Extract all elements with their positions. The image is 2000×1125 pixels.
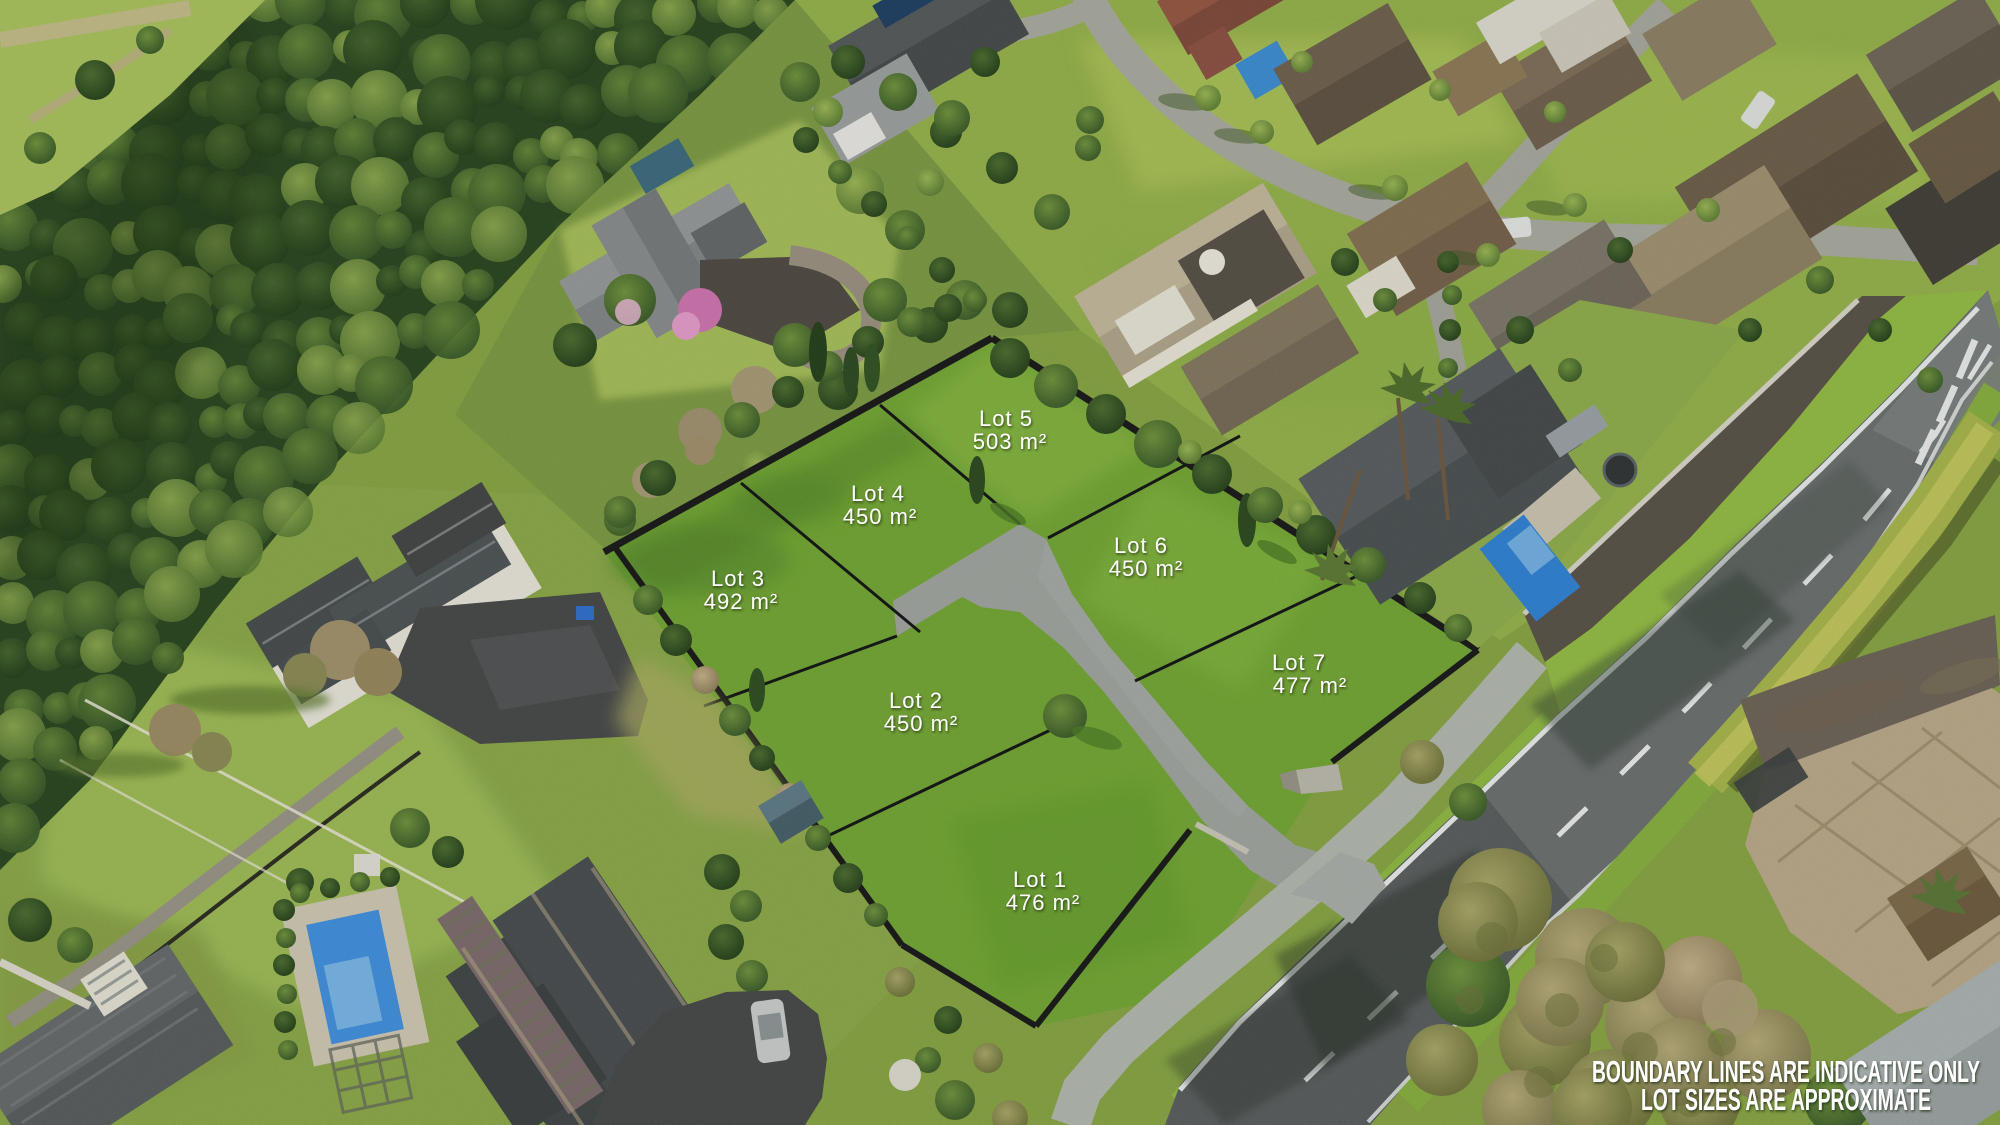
- svg-text:Lot 3: Lot 3: [711, 566, 765, 591]
- svg-text:450 m²: 450 m²: [1109, 556, 1183, 581]
- svg-text:492 m²: 492 m²: [704, 589, 778, 614]
- svg-text:Lot 6: Lot 6: [1114, 533, 1168, 558]
- svg-text:503 m²: 503 m²: [973, 429, 1047, 454]
- svg-text:450 m²: 450 m²: [843, 504, 917, 529]
- svg-text:Lot 7: Lot 7: [1272, 650, 1326, 675]
- svg-text:Lot 2: Lot 2: [889, 688, 943, 713]
- svg-text:LOT SIZES ARE APPROXIMATE: LOT SIZES ARE APPROXIMATE: [1641, 1082, 1931, 1117]
- svg-text:Lot 5: Lot 5: [979, 406, 1033, 431]
- svg-text:476 m²: 476 m²: [1006, 890, 1080, 915]
- svg-text:Lot 1: Lot 1: [1013, 867, 1067, 892]
- svg-text:477 m²: 477 m²: [1273, 673, 1347, 698]
- svg-text:450 m²: 450 m²: [884, 711, 958, 736]
- svg-text:Lot 4: Lot 4: [851, 481, 905, 506]
